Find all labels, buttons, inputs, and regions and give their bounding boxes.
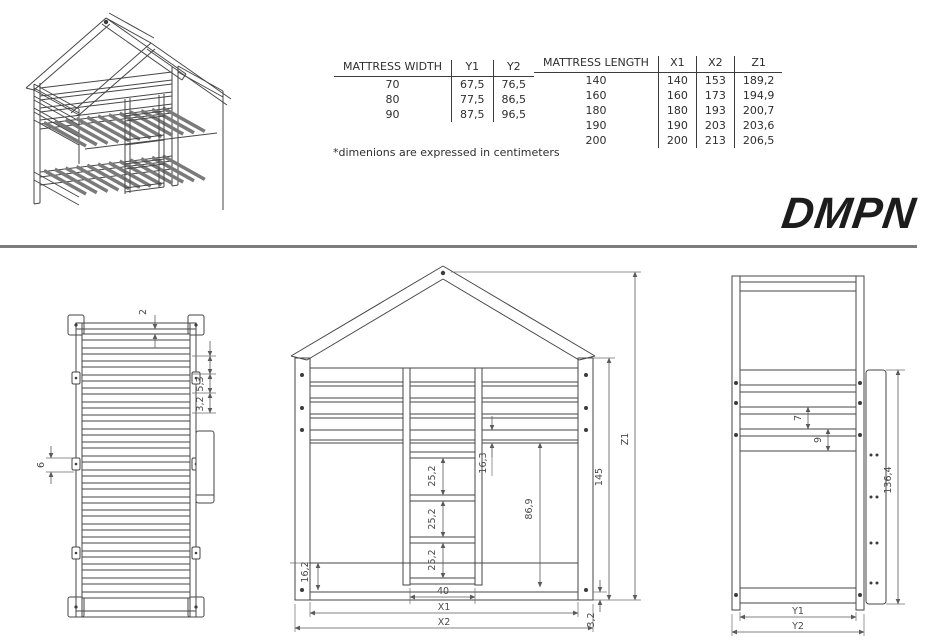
column-header: MATTRESS WIDTH [334,60,452,77]
table-cell: 160 [658,88,696,103]
table-cell: 206,5 [734,133,782,148]
table-cell: 140 [534,73,658,89]
technical-drawing-page: MATTRESS WIDTHY1Y27067,576,58077,586,590… [0,0,930,640]
column-header: Z1 [734,56,782,73]
mattress-width-table: MATTRESS WIDTHY1Y27067,576,58077,586,590… [334,60,534,122]
isometric-view [12,4,237,216]
table-cell: 190 [534,118,658,133]
table-row: 160160173194,9 [534,88,782,103]
slats [82,334,190,598]
dim-label-ladder-height: 136,4 [883,466,894,493]
brand-logo: DMPN [775,190,924,238]
dim-label-slat-width: 3,2 [195,396,206,411]
dim-label-ladder-width: 40 [437,586,449,597]
dim-label-total-height: Z1 [620,433,631,446]
table-cell: 190 [658,118,696,133]
table-cell: 67,5 [452,77,494,93]
column-header: MATTRESS LENGTH [534,56,658,73]
table-cell: 173 [696,88,734,103]
dim-label-outer-width: X2 [438,617,451,628]
dim-label-rung-gap-2: 25,2 [427,508,438,529]
units-note: *dimenions are expressed in centimeters [333,146,560,159]
dim-label-top-gap: 2 [138,309,149,315]
title-divider [0,245,917,248]
front-view: 16,2 25,2 25,2 25,2 16,3 86,9 40 X1 X2 [283,262,648,640]
table-cell: 70 [334,77,452,93]
screw-dots [734,381,862,597]
roof [26,13,231,115]
side-view: 7 9 136,4 Y1 Y2 [713,262,915,640]
corner-posts [68,315,204,617]
dim-label-plinth: 3,2 [586,612,597,627]
table-cell: 180 [534,103,658,118]
screw-dots [300,373,588,592]
table-cell: 86,5 [493,92,534,107]
dim-label-slat-pitch: 5,3 [195,376,206,391]
table-cell: 140 [658,73,696,89]
table-row: 200200213206,5 [534,133,782,148]
dim-label-inner-depth: Y1 [791,606,804,617]
table-cell: 160 [534,88,658,103]
table-cell: 213 [696,133,734,148]
dim-label-open-height: 86,9 [524,498,535,519]
roof [291,266,595,360]
rails [740,370,856,603]
table-cell: 193 [696,103,734,118]
posts [732,276,864,610]
column-header: X2 [696,56,734,73]
column-header: Y1 [452,60,494,77]
table-row: 180180193200,7 [534,103,782,118]
mattress-length-table: MATTRESS LENGTHX1X2Z1140140153189,216016… [534,56,782,148]
table-cell: 203 [696,118,734,133]
dim-label-base-height: 16,2 [300,561,311,582]
column-header: X1 [658,56,696,73]
table-cell: 200 [534,133,658,148]
table-cell: 200 [658,133,696,148]
table-cell: 194,9 [734,88,782,103]
dim-label-outer-depth: Y2 [791,621,804,632]
table-cell: 87,5 [452,107,494,122]
table-row: 7067,576,5 [334,77,534,93]
table-cell: 203,6 [734,118,782,133]
table-row: 140140153189,2 [534,73,782,89]
ladder [403,368,482,585]
ridge-beam [732,276,864,291]
guard-rails [310,368,578,443]
table-cell: 76,5 [493,77,534,93]
rail-brackets [72,372,200,559]
table-cell: 77,5 [452,92,494,107]
table-row: 8077,586,5 [334,92,534,107]
dim-label-rail-height: 7 [793,415,804,421]
top-view: 2 5,3 3,2 6 [30,296,230,640]
table-cell: 80 [334,92,452,107]
table-cell: 180 [658,103,696,118]
column-header: Y2 [493,60,534,77]
table-row: 190190203203,6 [534,118,782,133]
table-cell: 153 [696,73,734,89]
posts [295,358,593,600]
dim-label-rail-gap: 16,3 [478,452,489,473]
dim-label-bracket-height: 6 [36,462,47,468]
ladder-top-profile [196,431,214,503]
table-cell: 200,7 [734,103,782,118]
dim-label-rung-gap-3: 25,2 [427,549,438,570]
table-row: 9087,596,5 [334,107,534,122]
dim-label-inner-width: X1 [438,602,451,613]
dim-label-rung-gap-1: 25,2 [427,465,438,486]
dim-label-side-rail-gap: 9 [813,437,824,443]
table-cell: 96,5 [493,107,534,122]
lower-bunk-slats [34,156,205,205]
table-cell: 189,2 [734,73,782,89]
table-cell: 90 [334,107,452,122]
dim-label-wall-height: 145 [594,468,605,486]
